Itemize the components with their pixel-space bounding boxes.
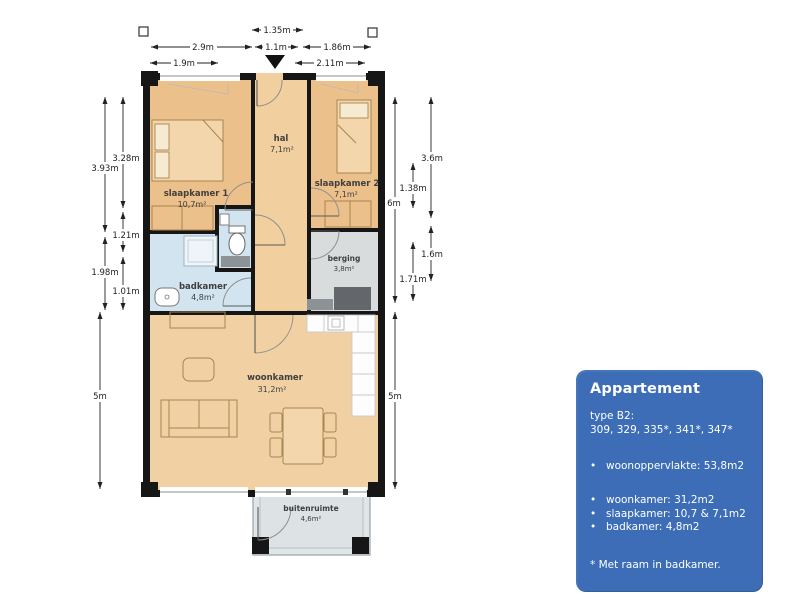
- info-unit-numbers: 309, 329, 335*, 341*, 347*: [590, 423, 753, 437]
- label-buitenruimte: buitenruimte: [283, 504, 338, 513]
- svg-text:1.38m: 1.38m: [399, 184, 426, 194]
- area-buitenruimte: 4,6m²: [301, 515, 322, 523]
- dim-left-3-93m: 3.93m: [89, 97, 121, 232]
- bed-icon-slaapkamer-2: [337, 100, 371, 173]
- dim-top-2-11m: 2.11m: [295, 57, 365, 69]
- dim-right-1-6m: 1.6m: [418, 226, 445, 281]
- apartment-info-panel: Appartement type B2: 309, 329, 335*, 341…: [576, 370, 763, 592]
- svg-text:1.01m: 1.01m: [112, 287, 139, 297]
- dim-left-3-28m: 3.28m: [110, 97, 142, 208]
- dim-top-1-35m: 1.35m: [252, 24, 303, 36]
- dim-right-3-6m: 3.6m: [418, 97, 445, 218]
- dim-left-5m: 5m: [91, 312, 109, 489]
- bullet-icon: •: [590, 494, 606, 508]
- dim-top-2-9m: 2.9m: [151, 41, 252, 53]
- room-woonkamer: [150, 315, 378, 490]
- svg-text:3.6m: 3.6m: [421, 154, 443, 164]
- corner-marker-right: [368, 28, 377, 37]
- svg-text:2.11m: 2.11m: [316, 59, 343, 69]
- svg-text:5m: 5m: [93, 392, 107, 402]
- corner-marker-left: [139, 27, 148, 36]
- dim-left-1-01m: 1.01m: [110, 257, 142, 310]
- bullet-icon: •: [590, 508, 606, 522]
- info-footnote: * Met raam in badkamer.: [590, 559, 753, 571]
- area-slaapkamer-1: 10,7m²: [178, 200, 207, 209]
- label-woonkamer: woonkamer: [247, 373, 304, 383]
- info-bullet-slaapkamer: • slaapkamer: 10,7 & 7,1m2: [590, 508, 753, 522]
- svg-text:1.9m: 1.9m: [173, 59, 195, 69]
- label-slaapkamer-2: slaapkamer 2: [315, 179, 380, 189]
- dim-top-1-1m: 1.1m: [255, 41, 298, 53]
- svg-text:3.93m: 3.93m: [91, 164, 118, 174]
- svg-text:1.35m: 1.35m: [263, 26, 290, 36]
- svg-text:5m: 5m: [388, 392, 402, 402]
- svg-text:6m: 6m: [387, 199, 401, 209]
- info-bullet-woonkamer: • woonkamer: 31,2m2: [590, 494, 753, 508]
- info-title: Appartement: [590, 381, 753, 397]
- area-hal: 7,1m²: [270, 145, 294, 154]
- washbasin-icon: [155, 288, 179, 306]
- label-hal: hal: [274, 134, 289, 144]
- svg-text:1.86m: 1.86m: [323, 43, 350, 53]
- area-badkamer: 4,8m²: [191, 293, 215, 302]
- dim-right-5m: 5m: [386, 312, 404, 489]
- svg-text:1.6m: 1.6m: [421, 250, 443, 260]
- window-woonkamer: [160, 487, 248, 497]
- dim-top-1-9m: 1.9m: [150, 57, 218, 69]
- label-badkamer: badkamer: [179, 282, 228, 292]
- bed-icon-slaapkamer-1: [152, 120, 223, 181]
- label-berging: berging: [328, 254, 361, 263]
- bullet-icon: •: [590, 460, 606, 474]
- svg-text:1.71m: 1.71m: [399, 275, 426, 285]
- info-type-label: type B2:: [590, 409, 753, 423]
- room-hal: [255, 80, 307, 311]
- area-berging: 3,8m²: [334, 265, 355, 273]
- entrance-arrow-icon: [265, 55, 285, 69]
- svg-text:1.21m: 1.21m: [112, 231, 139, 241]
- dim-left-1-21m: 1.21m: [110, 212, 142, 252]
- dim-top-1-86m: 1.86m: [303, 41, 371, 53]
- shower-icon: [184, 236, 217, 266]
- dim-right-6m: 6m: [385, 97, 403, 303]
- svg-text:1.1m: 1.1m: [265, 43, 287, 53]
- dim-left-1-98m: 1.98m: [89, 237, 121, 310]
- area-slaapkamer-2: 7,1m²: [334, 190, 358, 199]
- bullet-icon: •: [590, 521, 606, 535]
- svg-text:2.9m: 2.9m: [192, 43, 214, 53]
- svg-text:1.98m: 1.98m: [91, 268, 118, 278]
- info-bullet-woonoppervlakte: • woonoppervlakte: 53,8m2: [590, 460, 753, 474]
- area-woonkamer: 31,2m²: [258, 385, 287, 394]
- balcony-sliding-door: [255, 487, 367, 497]
- label-slaapkamer-1: slaapkamer 1: [164, 189, 229, 199]
- info-bullet-badkamer: • badkamer: 4,8m2: [590, 521, 753, 535]
- page: { "plan": { "rooms": { "slaapkamer1": {"…: [0, 0, 800, 600]
